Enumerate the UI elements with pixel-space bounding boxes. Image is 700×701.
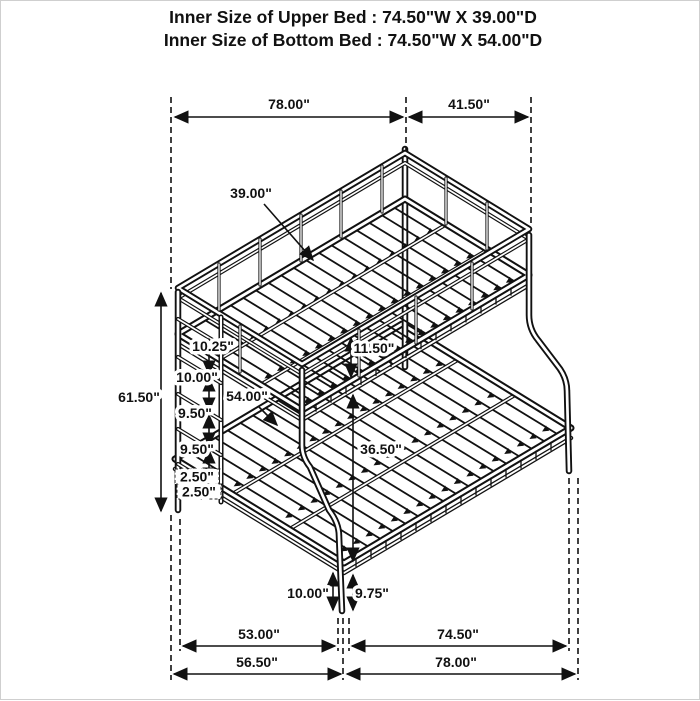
dimension-label-bottom-outer-right: 78.00" xyxy=(435,654,477,670)
dimension-label-ladder-step-3: 9.50" xyxy=(178,405,212,421)
bunk-bed-dimension-diagram: Inner Size of Upper Bed : 74.50"W X 39.0… xyxy=(1,1,700,701)
dimension-label-ladder-step-5: 2.50" xyxy=(180,469,214,485)
bunk-bed-dimension-diagram-page: Inner Size of Upper Bed : 74.50"W X 39.0… xyxy=(0,0,700,700)
dimension-label-front-leg-right: 9.75" xyxy=(355,585,389,601)
dimension-label-overall-height: 61.50" xyxy=(118,389,160,405)
dimension-label-top-length: 78.00" xyxy=(268,96,310,112)
dimension-label-guardrail-height: 11.50" xyxy=(354,340,395,356)
dimension-label-ladder-step-1: 10.25" xyxy=(192,338,234,354)
dimension-label-ladder-step-4: 9.50" xyxy=(180,441,214,457)
dimension-label-ladder-step-2: 10.00" xyxy=(176,369,218,385)
dimension-label-ladder-step-6: 2.50" xyxy=(182,484,216,500)
diagram-title-upper-bed: Inner Size of Upper Bed : 74.50"W X 39.0… xyxy=(169,7,537,27)
dimension-label-under-clearance: 36.50" xyxy=(360,441,402,457)
dimension-label-bottom-outer-left: 56.50" xyxy=(236,654,278,670)
dimension-label-bottom-inner-left: 53.00" xyxy=(238,626,280,642)
dimension-label-upper-bed-depth: 39.00" xyxy=(230,185,272,201)
upper-bed-deck xyxy=(178,199,529,420)
diagram-title-bottom-bed: Inner Size of Bottom Bed : 74.50"W X 54.… xyxy=(164,30,542,50)
dimension-label-lower-bed-depth: 54.00" xyxy=(226,388,268,404)
bunk-bed-drawing xyxy=(175,149,571,611)
dimension-label-bottom-inner-right: 74.50" xyxy=(437,626,479,642)
dimension-label-top-depth: 41.50" xyxy=(448,96,490,112)
dimension-label-front-leg-left: 10.00" xyxy=(287,585,329,601)
